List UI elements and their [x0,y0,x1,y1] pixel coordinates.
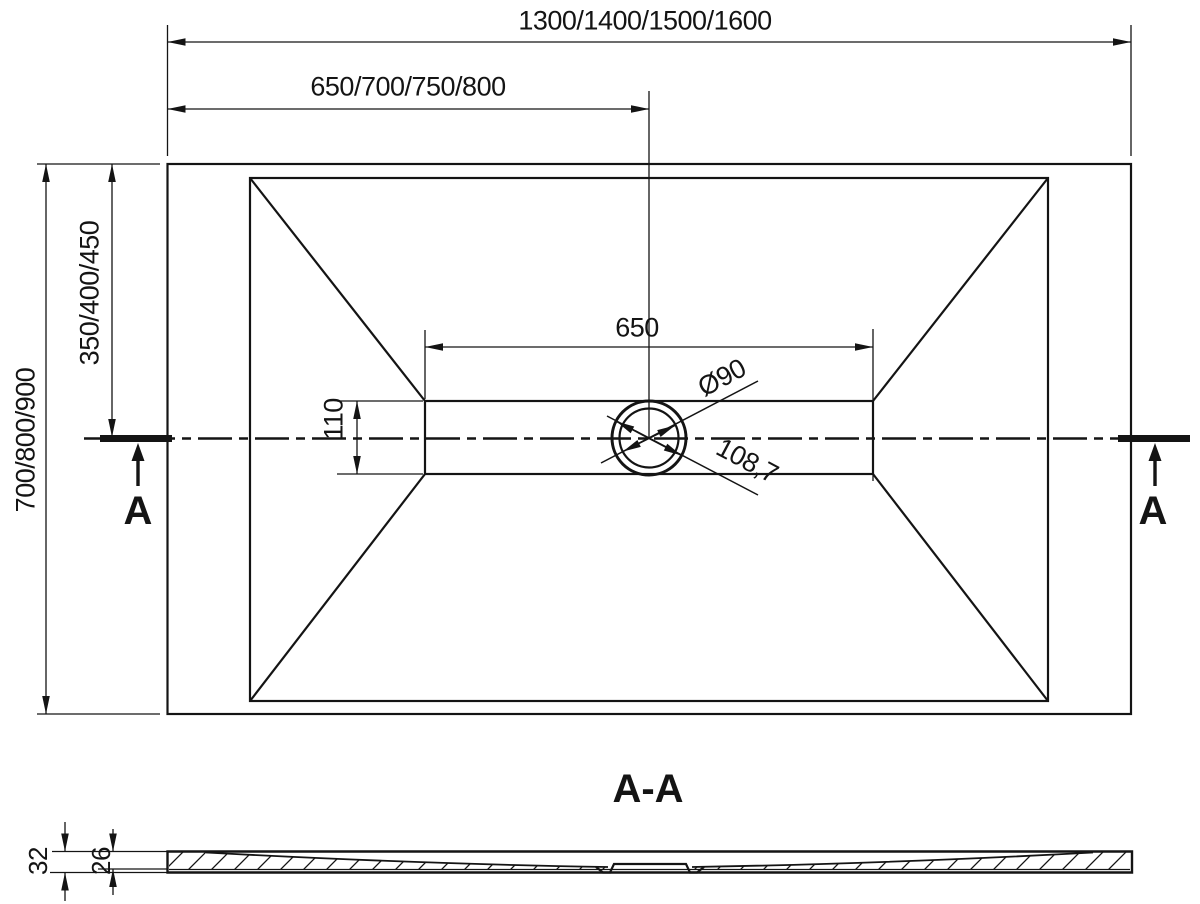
dim-inner-depth-label: 26 [88,847,114,875]
plan-view [37,25,1190,714]
dim-length-to-drain-center-label: 650/700/750/800 [310,74,505,101]
section-arrow-left [132,443,145,486]
dim-channel-width-label: 110 [321,398,348,440]
section-view-title: A-A [612,769,683,809]
extension-lines [37,25,1131,714]
dim-width-to-center-label: 350/400/450 [77,221,104,366]
section-view [50,822,1132,901]
section-drain-pocket [596,864,704,873]
dim-total-height-label: 32 [25,847,51,875]
dim-channel-length-label: 650 [615,315,659,342]
section-marker-right-label: A [1139,491,1168,531]
section-arrow-right [1149,443,1162,486]
drawing-geometry [0,0,1200,904]
section-marker-left-label: A [124,491,153,531]
dimension-lines [46,42,1131,714]
dim-overall-width-label: 700/800/900 [13,368,40,513]
dim-overall-length-label: 1300/1400/1500/1600 [518,8,771,35]
shower-tray-technical-drawing: 1300/1400/1500/1600 650/700/750/800 700/… [0,0,1200,904]
